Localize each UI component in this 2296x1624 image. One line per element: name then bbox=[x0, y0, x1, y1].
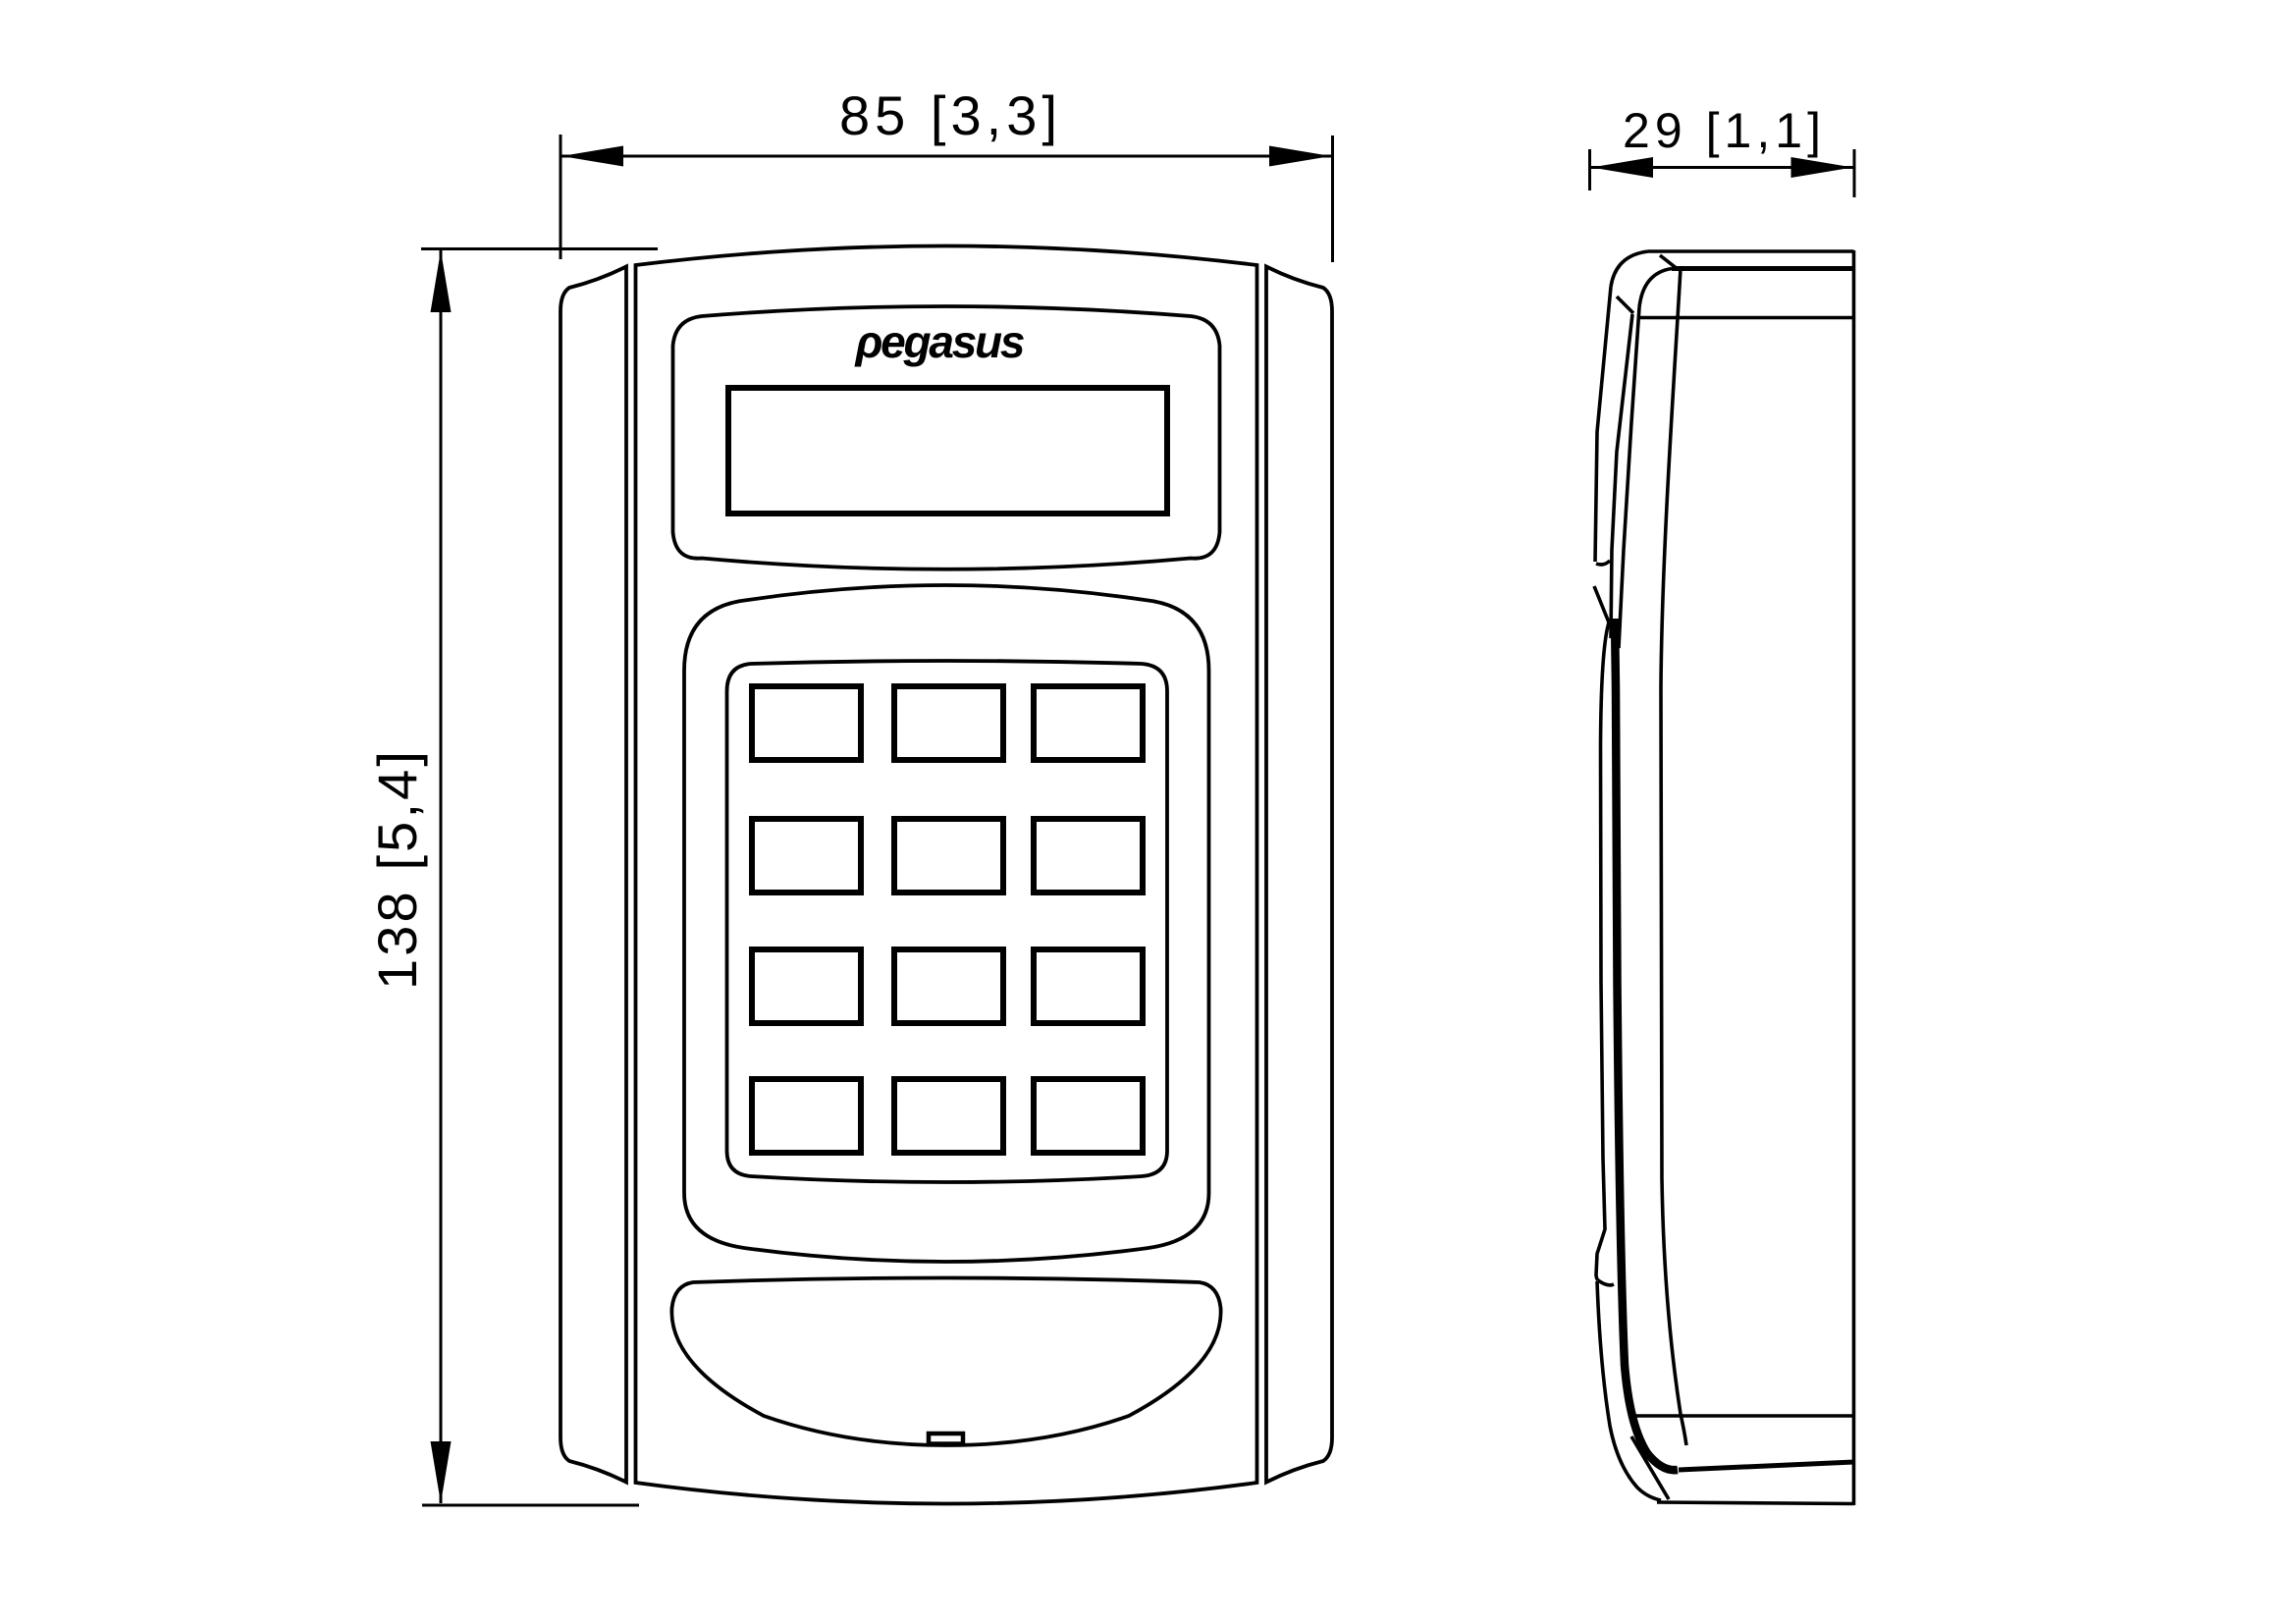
svg-text:138 [5,4]: 138 [5,4] bbox=[366, 751, 428, 990]
svg-text:ρegasus: ρegasus bbox=[854, 316, 1026, 367]
